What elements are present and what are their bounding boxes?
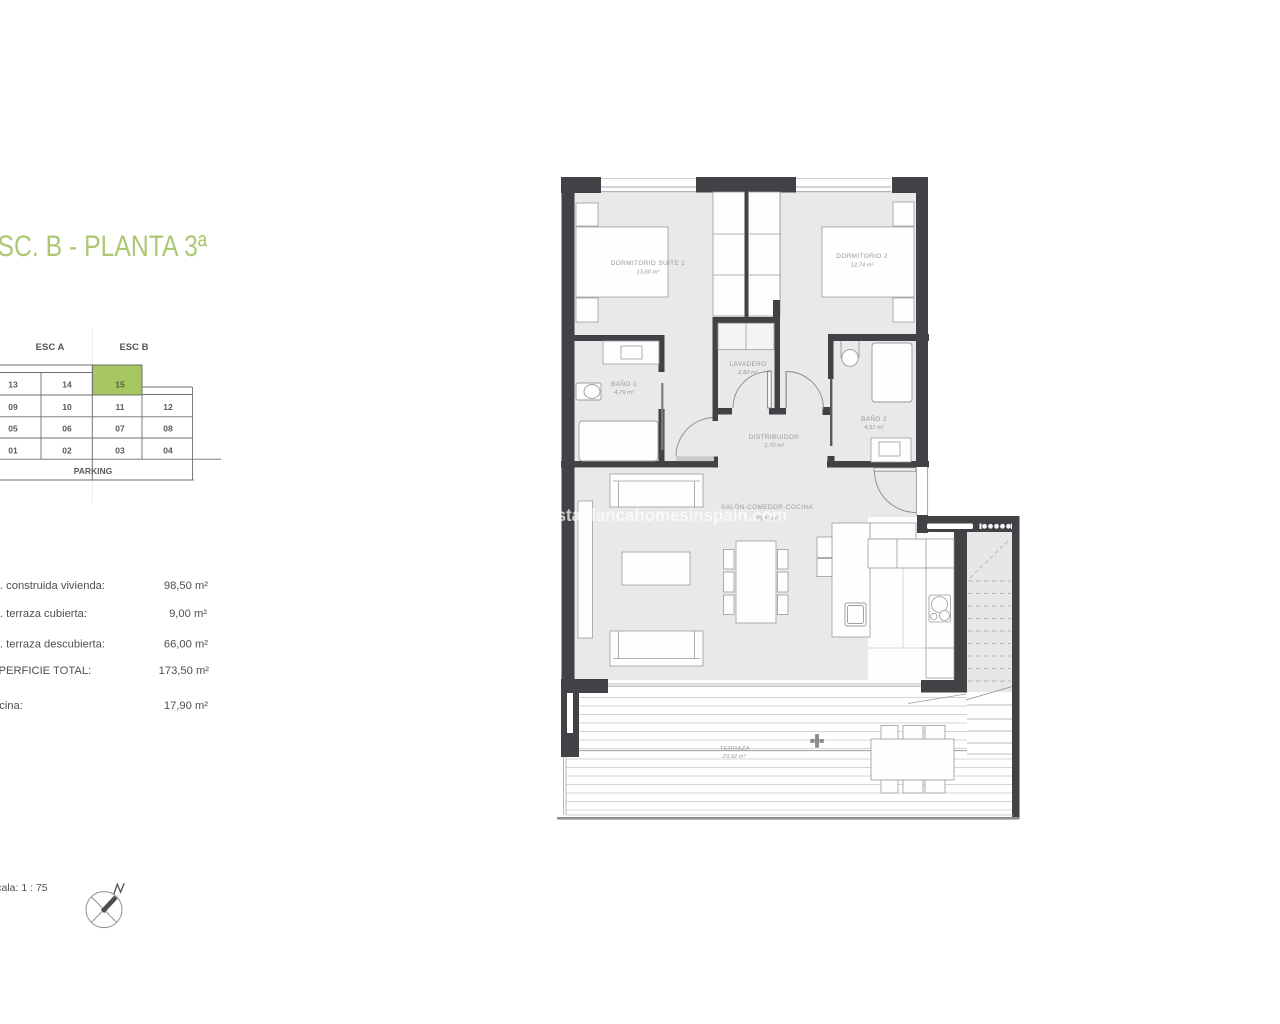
svg-text:11: 11 xyxy=(116,402,125,412)
svg-text:98,50 m²: 98,50 m² xyxy=(164,580,208,592)
svg-text:Sup. terraza descubierta:: Sup. terraza descubierta: xyxy=(0,639,105,651)
svg-text:07: 07 xyxy=(115,424,125,434)
svg-text:LAVADERO: LAVADERO xyxy=(729,361,766,368)
svg-text:SUPERFICIE TOTAL:: SUPERFICIE TOTAL: xyxy=(0,665,91,677)
svg-text:05: 05 xyxy=(8,424,18,434)
svg-text:01: 01 xyxy=(8,446,18,456)
svg-text:08: 08 xyxy=(163,424,173,434)
svg-text:03: 03 xyxy=(115,446,125,456)
svg-text:9,00 m²: 9,00 m² xyxy=(169,608,207,620)
svg-text:23,92 m²: 23,92 m² xyxy=(722,754,747,760)
svg-text:17,90 m²: 17,90 m² xyxy=(164,700,208,712)
svg-text:BAÑO 2: BAÑO 2 xyxy=(861,414,887,423)
svg-text:06: 06 xyxy=(62,424,72,434)
svg-text:DORMITORIO 2: DORMITORIO 2 xyxy=(836,253,888,260)
svg-text:12,74 m²: 12,74 m² xyxy=(851,263,875,269)
svg-text:15: 15 xyxy=(115,380,125,390)
svg-text:PARKING: PARKING xyxy=(74,466,113,476)
svg-text:4,79 m²: 4,79 m² xyxy=(614,390,635,396)
svg-text:14: 14 xyxy=(62,380,72,390)
svg-text:BAÑO 1: BAÑO 1 xyxy=(611,379,637,388)
svg-text:13,60 m²: 13,60 m² xyxy=(637,270,661,276)
svg-text:DORMITORIO SUITE 1: DORMITORIO SUITE 1 xyxy=(611,260,686,267)
svg-text:173,50 m²: 173,50 m² xyxy=(159,665,210,677)
svg-text:10: 10 xyxy=(62,402,72,412)
svg-text:09: 09 xyxy=(8,402,18,412)
svg-text:ESC. B - PLANTA 3ª: ESC. B - PLANTA 3ª xyxy=(0,230,208,263)
svg-text:ESC B: ESC B xyxy=(119,342,148,353)
svg-text:TERRAZA: TERRAZA xyxy=(720,746,750,752)
svg-text:66,00 m²: 66,00 m² xyxy=(164,639,208,651)
svg-text:2,50 m²: 2,50 m² xyxy=(737,370,759,376)
svg-text:Escala: 1 : 75: Escala: 1 : 75 xyxy=(0,882,48,894)
svg-text:DISTRIBUIDOR: DISTRIBUIDOR xyxy=(749,434,800,441)
svg-text:4,51 m²: 4,51 m² xyxy=(864,425,885,431)
svg-text:costablancahomesinspain.com: costablancahomesinspain.com xyxy=(537,505,787,525)
svg-text:13: 13 xyxy=(8,380,18,390)
svg-text:12: 12 xyxy=(163,402,173,412)
svg-text:2,70 m²: 2,70 m² xyxy=(763,443,785,449)
svg-text:útil cocina:: útil cocina: xyxy=(0,700,23,712)
svg-text:04: 04 xyxy=(163,446,173,456)
svg-text:ESC A: ESC A xyxy=(36,342,65,353)
svg-text:Sup. construida vivienda:: Sup. construida vivienda: xyxy=(0,580,105,592)
svg-text:02: 02 xyxy=(62,446,72,456)
svg-text:Sup. terraza cubierta:: Sup. terraza cubierta: xyxy=(0,608,87,620)
